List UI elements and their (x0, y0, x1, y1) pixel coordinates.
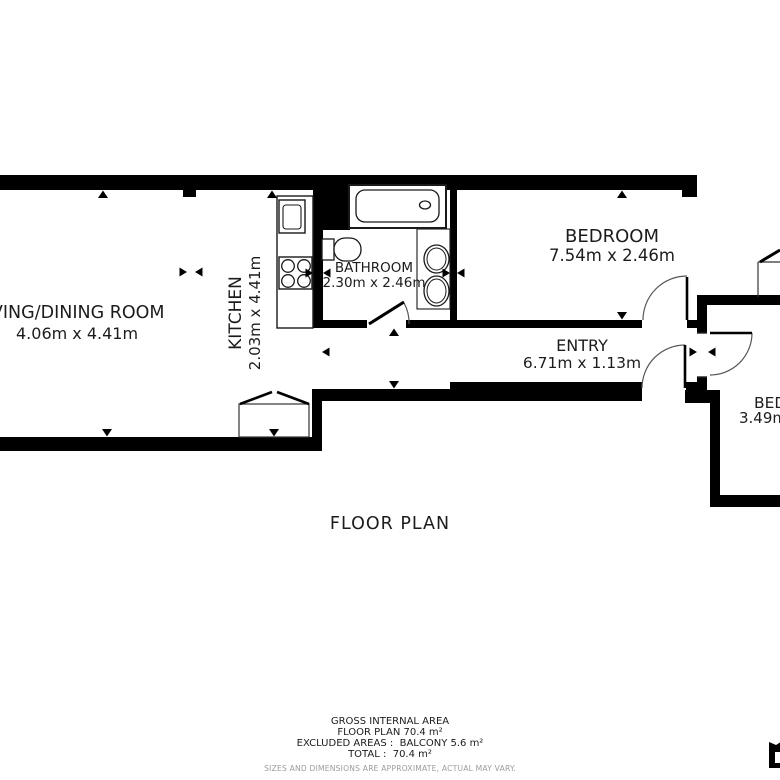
bedroom2-dims: 3.49m x (739, 410, 780, 427)
bedroom-dims: 7.54m x 2.46m (512, 247, 712, 265)
floor-plan-page: { "title": "FLOOR PLAN", "colors": { "wa… (0, 0, 780, 780)
footer-total-area: TOTAL : 70.4 m² (0, 749, 780, 760)
entry-dims: 6.71m x 1.13m (482, 355, 682, 372)
fixtures (277, 185, 450, 328)
wall-bath-bottom-right (406, 320, 457, 328)
wall-bath-corner-chunk (323, 190, 350, 230)
kitchen-dims: 2.03m x 4.41m (246, 256, 264, 370)
plan-title: FLOOR PLAN (0, 514, 780, 534)
wall-bath-bedroom-divider (450, 190, 457, 320)
wall-bedroom-bottom (457, 320, 642, 328)
wall-bedroom2-top (697, 295, 780, 305)
footer-excluded-areas: EXCLUDED AREAS : BALCONY 5.6 m² (0, 738, 780, 749)
toilet (322, 238, 361, 261)
bathtub (349, 185, 446, 228)
footer-area-summary: GROSS INTERNAL AREA FLOOR PLAN 70.4 m² E… (0, 716, 780, 774)
wall-entry-bottom-main (450, 382, 642, 401)
bedroom2-door (710, 333, 752, 375)
wall-living-bottom (0, 437, 322, 451)
kitchen-sink (279, 200, 305, 233)
wall-bath-bottom-left (313, 320, 367, 328)
entry-label: ENTRY (482, 337, 682, 355)
living-room-label: LIVING/DINING ROOM (0, 304, 165, 324)
bedroom-label-group: BEDROOM 7.54m x 2.46m (512, 227, 712, 266)
bedroom-label: BEDROOM (512, 227, 712, 247)
wall-stub-bedroom (682, 190, 697, 197)
wall-bedroom2-bottom (710, 495, 780, 507)
floor-plan-drawing (0, 0, 780, 780)
bathroom-label: BATHROOM (294, 261, 454, 276)
footer-floor-plan-area: FLOOR PLAN 70.4 m² (0, 727, 780, 738)
wall-entry-bottom-left (322, 389, 450, 401)
kitchen-label-group: KITCHEN 2.03m x 4.41m (225, 253, 265, 373)
wall-bedroom2-jog (685, 390, 720, 403)
passage-opening (697, 333, 707, 377)
wall-bedroom2-left-lower (710, 403, 720, 495)
wall-bedroom2-left-mid (697, 377, 707, 390)
footer-gross-internal-area: GROSS INTERNAL AREA (0, 716, 780, 727)
entry-label-group: ENTRY 6.71m x 1.13m (482, 337, 682, 372)
kitchen-label: KITCHEN (226, 276, 246, 350)
balcony-door-top-right (758, 250, 780, 297)
bathroom-door (369, 302, 409, 324)
wall-stub-kitchen (183, 190, 196, 197)
bathroom-label-group: BATHROOM 2.30m x 2.46m (294, 261, 454, 291)
wall-living-right-connector (312, 389, 322, 451)
footer-disclaimer: SIZES AND DIMENSIONS ARE APPROXIMATE, AC… (0, 763, 780, 774)
bathroom-dims: 2.30m x 2.46m (294, 276, 454, 291)
wall-bedroom2-left-upper (697, 305, 707, 333)
living-room-dims: 4.06m x 4.41m (16, 325, 138, 343)
bedroom-door (643, 276, 687, 320)
wall-bedroom-bottom-end (687, 320, 697, 328)
